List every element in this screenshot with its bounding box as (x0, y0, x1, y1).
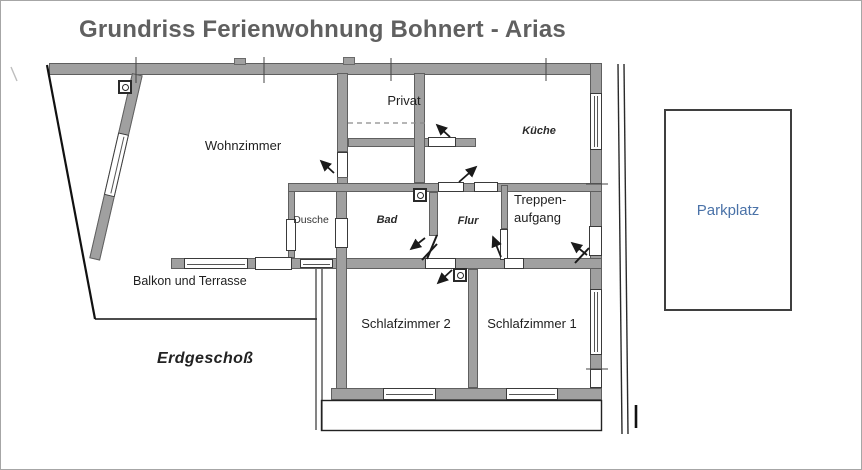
wall-top-notch (343, 57, 355, 65)
door-opening-kueche (438, 182, 464, 192)
scan-mark (11, 67, 17, 81)
door-arrow-icon (572, 243, 587, 255)
terrace-outline (47, 65, 95, 319)
door-opening-schlafzimmer1 (504, 258, 524, 269)
window (590, 369, 602, 388)
door-leaf (427, 235, 437, 259)
door-opening-kueche (474, 182, 498, 192)
room-label-schlafzimmer1: Schlafzimmer 1 (477, 316, 587, 331)
room-label-kueche: Küche (509, 125, 569, 137)
floor-label: Erdgeschoß (157, 350, 253, 368)
window (184, 258, 248, 269)
door-opening-entrance (589, 226, 602, 256)
window (506, 388, 558, 400)
wall-dusche-bad-divider (336, 185, 347, 389)
room-label-bad: Bad (367, 214, 407, 226)
window (104, 132, 129, 197)
outlet-icon (118, 80, 132, 94)
wall-privat-bottom (348, 138, 476, 147)
outlet-icon (413, 188, 427, 202)
room-label-wohnzimmer: Wohnzimmer (188, 138, 298, 153)
room-label-dusche: Dusche (293, 214, 329, 226)
window (590, 289, 602, 355)
outlet-icon (453, 268, 467, 282)
balcony-label: Balkon und Terrasse (133, 274, 247, 288)
room-label-schlafzimmer2: Schlafzimmer 2 (351, 316, 461, 331)
door-arrow-icon (437, 125, 450, 137)
door-arrow-icon (459, 167, 476, 182)
terrace-strip (322, 401, 602, 431)
wall-bottom (331, 388, 602, 400)
room-label-privat: Privat (374, 93, 434, 108)
wall-flur-divider (501, 185, 508, 229)
door-opening-schlafzimmer2 (425, 258, 456, 269)
door-arrow-icon (438, 270, 452, 283)
page-title: Grundriss Ferienwohnung Bohnert - Arias (79, 16, 566, 44)
room-label-flur: Flur (448, 215, 488, 227)
wall-bad-right (429, 192, 438, 236)
wall-wohnzimmer-divider (337, 73, 348, 152)
door-opening-balkon (255, 257, 292, 270)
scan-page-edge (618, 64, 622, 434)
parking-label: Parkplatz (697, 202, 760, 219)
door-leaf-schlafzimmer1 (500, 229, 508, 260)
door-opening-wohnzimmer (337, 152, 348, 178)
wall-kueche-left (414, 73, 425, 183)
door-opening-privat (428, 137, 456, 147)
door-arrow-icon (321, 161, 334, 173)
window (383, 388, 436, 400)
door-arrow-icon (411, 238, 425, 249)
window (300, 259, 333, 268)
scan-page-edge (624, 64, 628, 434)
niche-dusche-bad (335, 218, 348, 248)
floor-plan-page: Grundriss Ferienwohnung Bohnert - Arias (0, 0, 862, 470)
wall-top-notch (234, 58, 246, 65)
wall-slanted-left (89, 73, 142, 261)
parking-box: Parkplatz (664, 109, 792, 311)
room-label-treppenaufgang: Treppen- aufgang (514, 191, 566, 227)
window (590, 93, 602, 150)
